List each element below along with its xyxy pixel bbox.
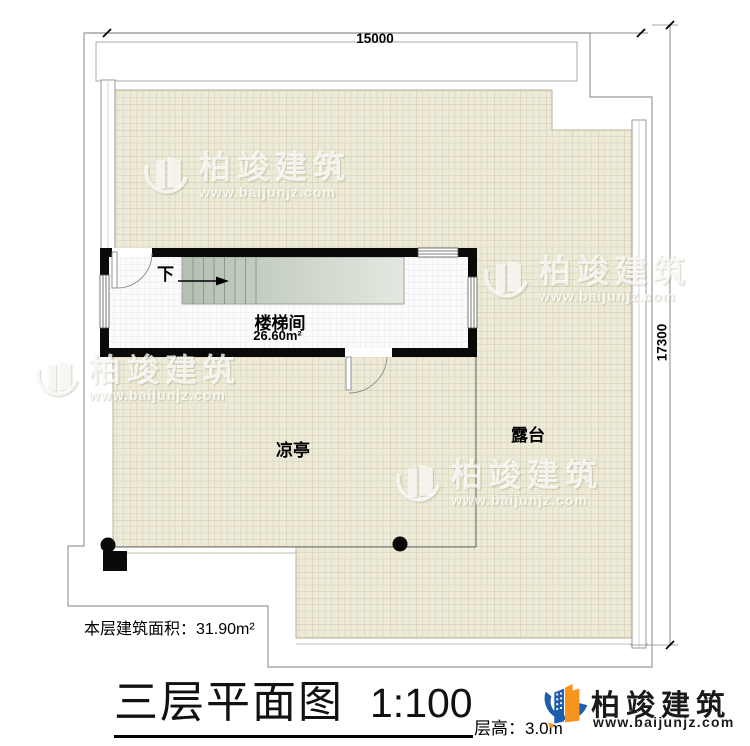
floor-plan-page: 柏竣建筑 www.baijunjz.com 柏竣建筑 www.baijunjz.… xyxy=(0,0,750,746)
drawing-title-block: 三层平面图 1:100 xyxy=(114,666,473,738)
pavilion-post xyxy=(393,537,408,552)
brand-logo: 柏竣建筑 www.baijunjz.com xyxy=(534,676,750,740)
door-leaf xyxy=(346,357,351,390)
door-leaf xyxy=(112,252,117,288)
corner-column xyxy=(103,551,127,571)
room-label-terrace: 露台 xyxy=(478,421,578,446)
dimension-right-label: 17300 xyxy=(655,314,670,372)
dimension-top-label: 15000 xyxy=(341,31,409,46)
logo-building-icon xyxy=(534,678,592,738)
floor-area-label: 本层建筑面积：31.90m² xyxy=(84,615,255,639)
stair-down-label: 下 xyxy=(157,260,174,285)
room-label-pavilion: 凉亭 xyxy=(243,436,343,461)
logo-url: www.baijunjz.com xyxy=(593,714,735,730)
drawing-title: 三层平面图 xyxy=(114,666,344,730)
drawing-scale: 1:100 xyxy=(370,680,473,727)
room-area-stairwell: 26.60m² xyxy=(230,328,325,343)
pavilion-post xyxy=(101,538,116,553)
